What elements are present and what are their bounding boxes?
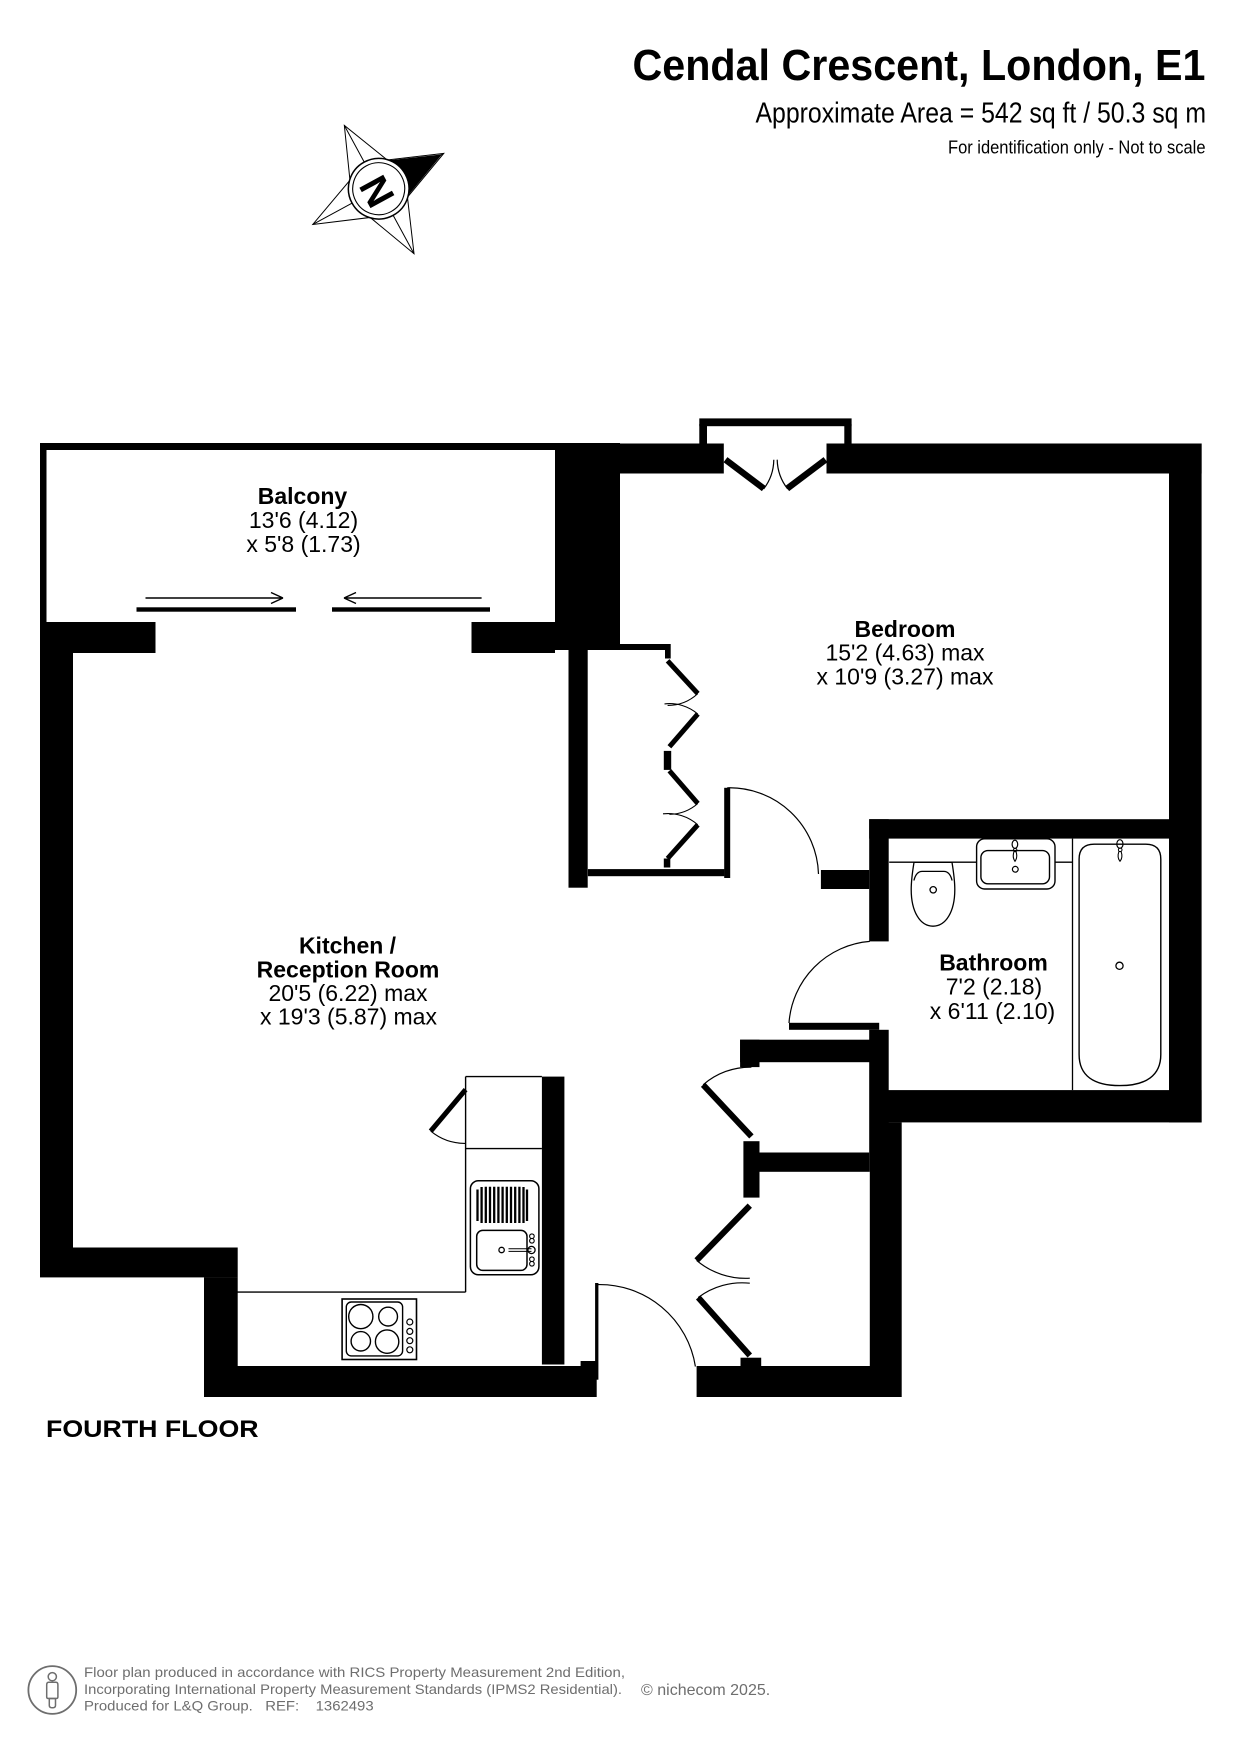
svg-text:Reception Room: Reception Room <box>257 957 440 983</box>
svg-text:FOURTH FLOOR: FOURTH FLOOR <box>46 1416 259 1443</box>
svg-text:Bathroom: Bathroom <box>939 950 1048 976</box>
svg-text:For identification only - Not: For identification only - Not to scale <box>948 137 1206 158</box>
svg-text:7'2 (2.18): 7'2 (2.18) <box>946 974 1042 1000</box>
svg-text:13'6 (4.12): 13'6 (4.12) <box>249 507 358 533</box>
svg-text:Kitchen /: Kitchen / <box>299 933 397 959</box>
svg-text:Incorporating International Pr: Incorporating International Property Mea… <box>84 1681 622 1697</box>
svg-text:x 19'3 (5.87) max: x 19'3 (5.87) max <box>260 1004 437 1030</box>
svg-text:Approximate Area = 542 sq ft /: Approximate Area = 542 sq ft / 50.3 sq m <box>756 98 1207 130</box>
svg-text:x 5'8 (1.73): x 5'8 (1.73) <box>246 531 360 557</box>
svg-text:x 6'11 (2.10): x 6'11 (2.10) <box>930 998 1055 1024</box>
svg-text:Balcony: Balcony <box>258 483 348 509</box>
svg-text:© nichecom 2025.: © nichecom 2025. <box>641 1682 770 1699</box>
svg-text:Floor plan produced in accorda: Floor plan produced in accordance with R… <box>84 1664 625 1680</box>
svg-text:Cendal Crescent, London, E1: Cendal Crescent, London, E1 <box>633 41 1206 90</box>
svg-text:Produced for L&Q Group. REF:: Produced for L&Q Group. REF: 1362493 <box>84 1698 374 1714</box>
svg-text:Bedroom: Bedroom <box>855 616 956 642</box>
svg-text:20'5 (6.22) max: 20'5 (6.22) max <box>268 980 428 1006</box>
svg-text:15'2 (4.63) max: 15'2 (4.63) max <box>825 640 985 666</box>
svg-text:x 10'9 (3.27) max: x 10'9 (3.27) max <box>817 663 994 689</box>
